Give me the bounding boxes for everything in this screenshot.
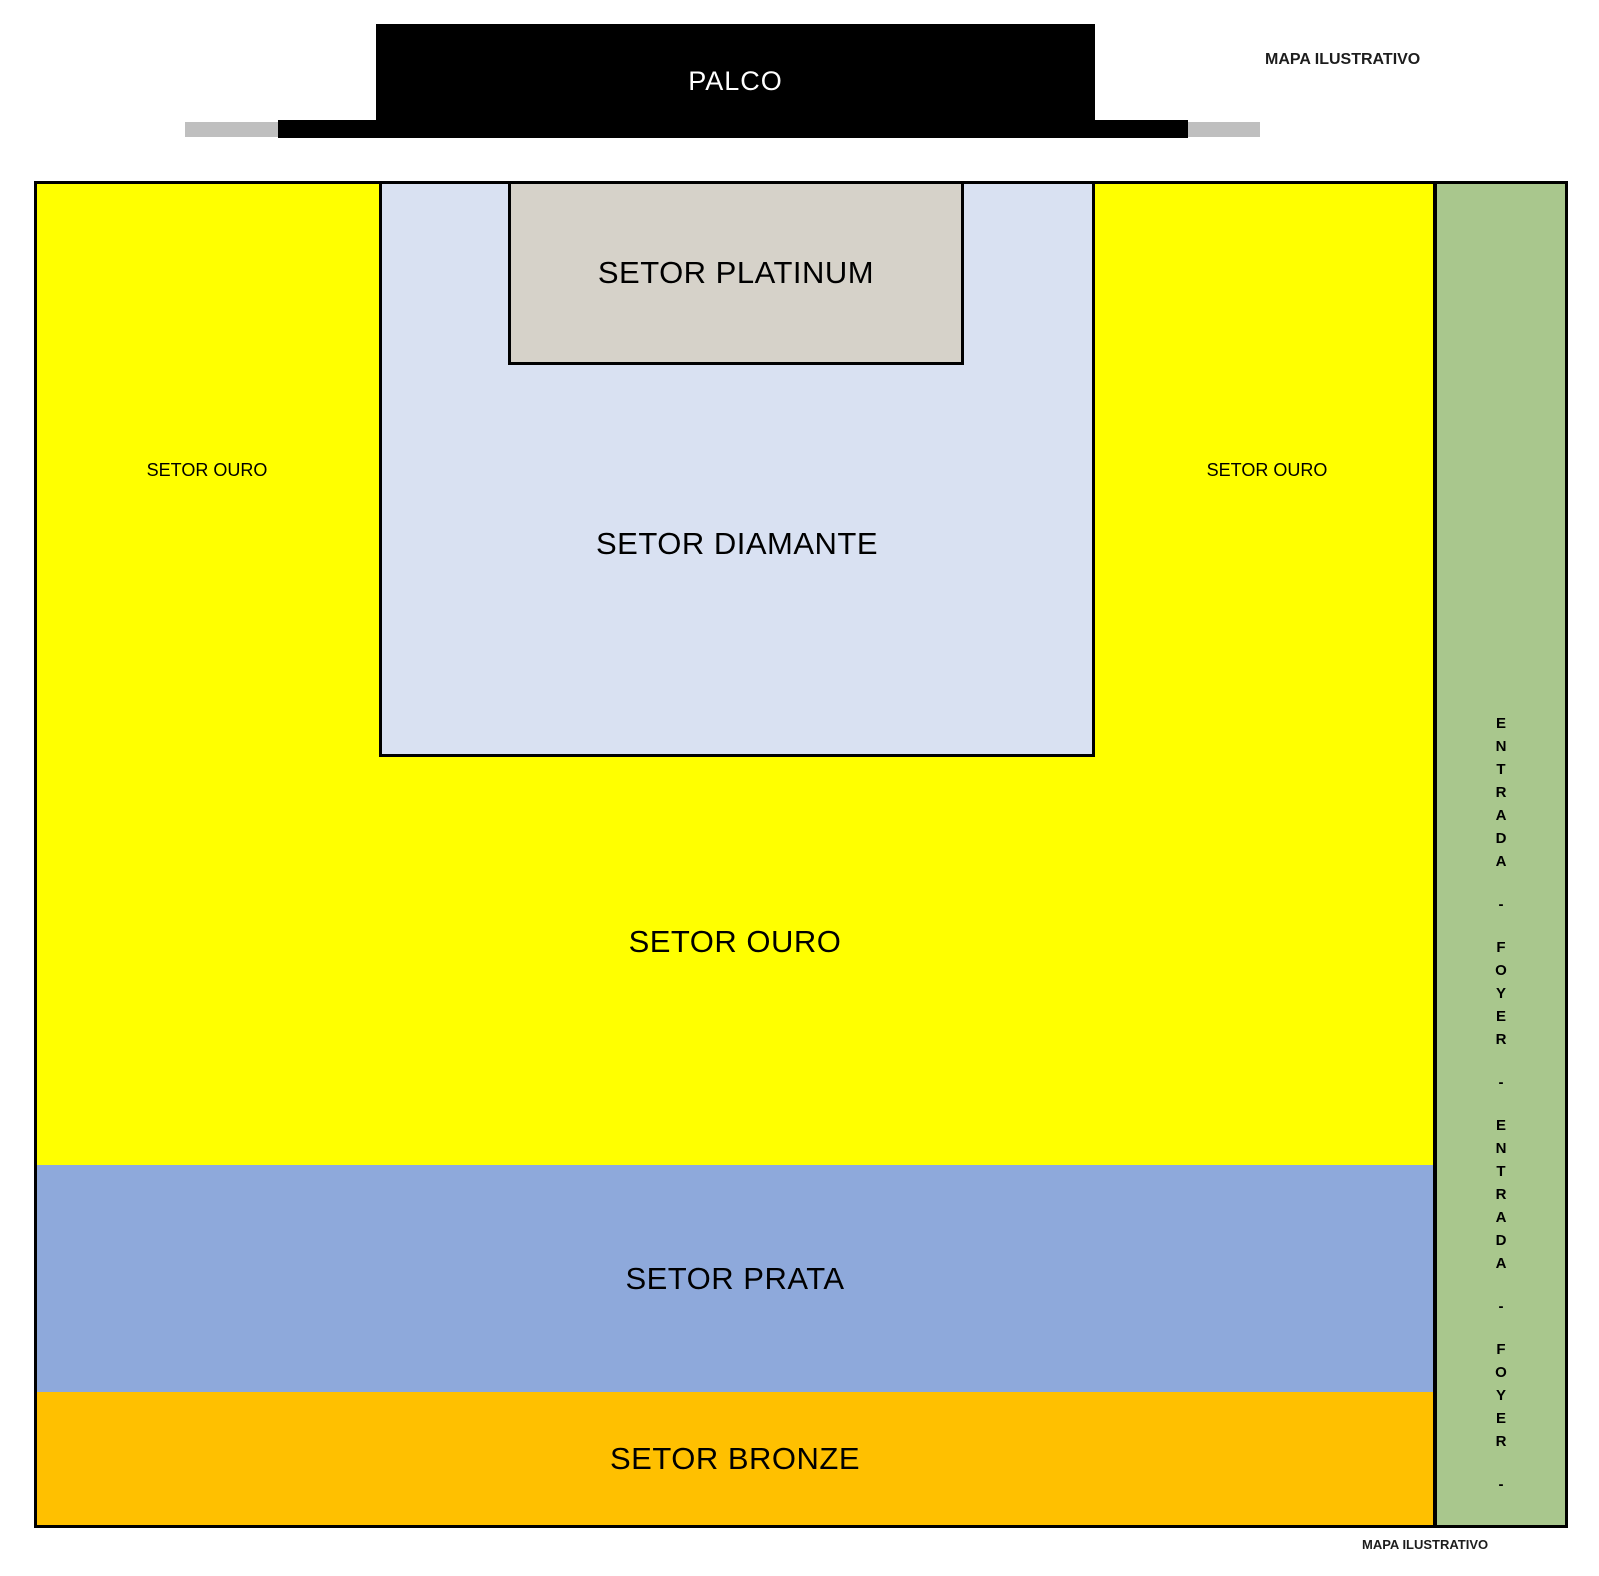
sector-diamante: SETOR PLATINUM SETOR DIAMANTE xyxy=(379,184,1095,757)
sector-diamante-label: SETOR DIAMANTE xyxy=(382,526,1092,562)
sector-platinum: SETOR PLATINUM xyxy=(508,184,964,365)
sector-platinum-label: SETOR PLATINUM xyxy=(598,255,874,291)
stage-wing-left xyxy=(185,122,278,137)
sector-ouro-side-label-right: SETOR OURO xyxy=(1097,460,1437,481)
sector-ouro-label: SETOR OURO xyxy=(37,924,1433,960)
sector-prata: SETOR PRATA xyxy=(37,1165,1433,1392)
watermark-top: MAPA ILUSTRATIVO xyxy=(1265,51,1420,69)
entrance-vertical-text: ENTRADA-FOYER-ENTRADA-FOYER- xyxy=(1437,712,1565,1516)
venue-map: SETOR PLATINUM SETOR DIAMANTE SETOR OURO… xyxy=(34,181,1568,1528)
watermark-bottom: MAPA ILUSTRATIVO xyxy=(1362,1537,1488,1552)
sector-bronze: SETOR BRONZE xyxy=(37,1392,1433,1525)
sector-prata-label: SETOR PRATA xyxy=(625,1261,844,1297)
venue-map-canvas: PALCO MAPA ILUSTRATIVO SETOR PLATINUM SE… xyxy=(0,0,1599,1576)
sector-ouro-side-label-left: SETOR OURO xyxy=(37,460,377,481)
stage-wing-right xyxy=(1188,122,1260,137)
entrance-foyer-strip: ENTRADA-FOYER-ENTRADA-FOYER- xyxy=(1433,184,1565,1525)
sector-bronze-label: SETOR BRONZE xyxy=(610,1441,860,1477)
stage: PALCO xyxy=(376,24,1095,138)
stage-label: PALCO xyxy=(688,66,783,97)
